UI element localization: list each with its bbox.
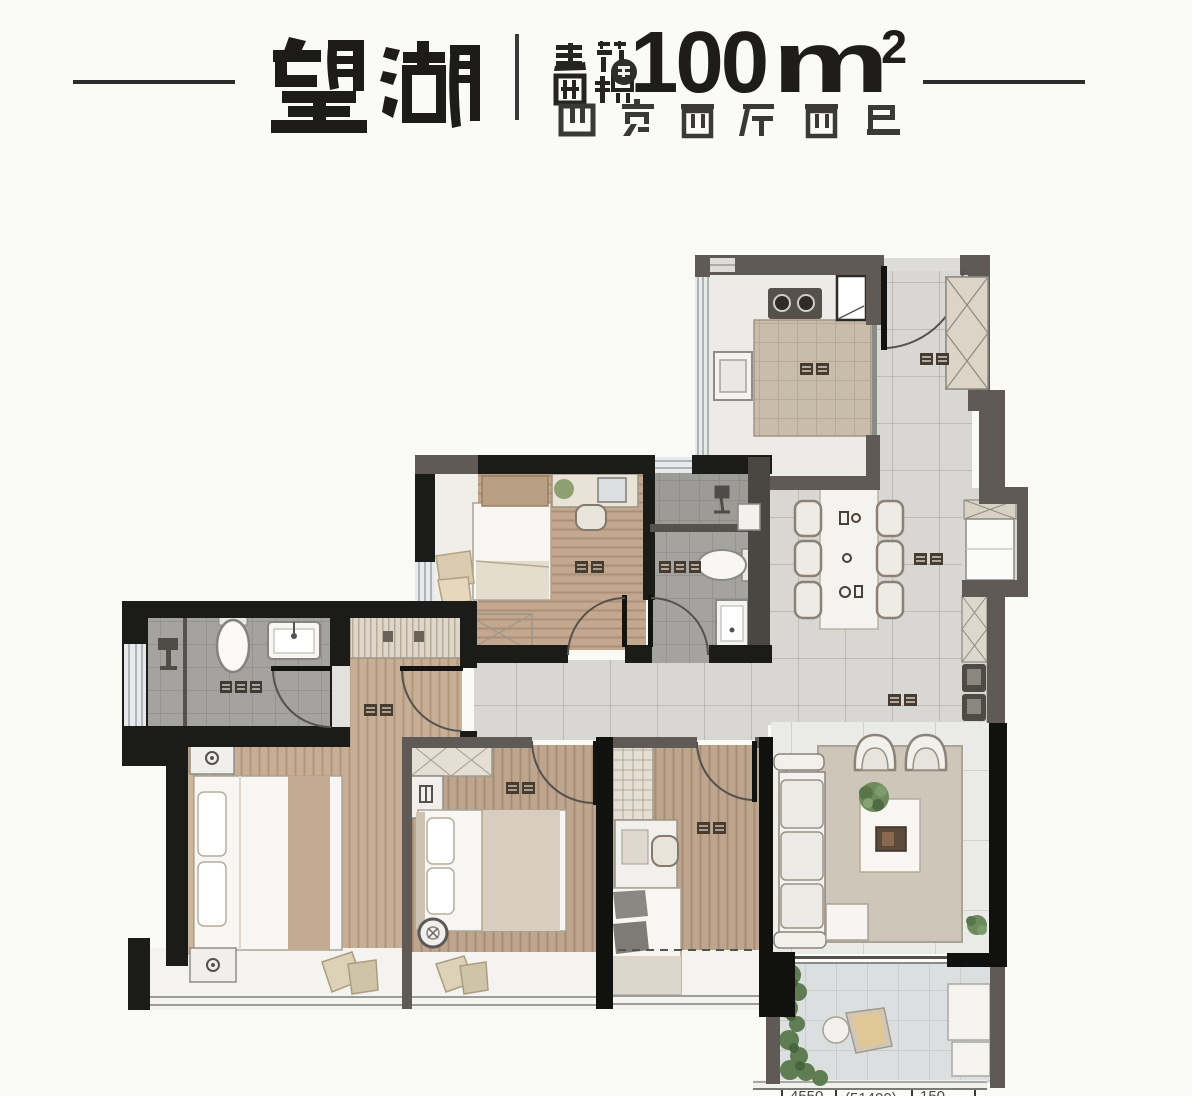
svg-text:150: 150	[920, 1088, 945, 1096]
svg-text:(51400): (51400)	[845, 1090, 897, 1096]
svg-text:m: m	[772, 13, 890, 110]
svg-text:2: 2	[881, 20, 907, 73]
svg-text:100: 100	[630, 14, 766, 111]
svg-text:4550: 4550	[790, 1088, 823, 1096]
